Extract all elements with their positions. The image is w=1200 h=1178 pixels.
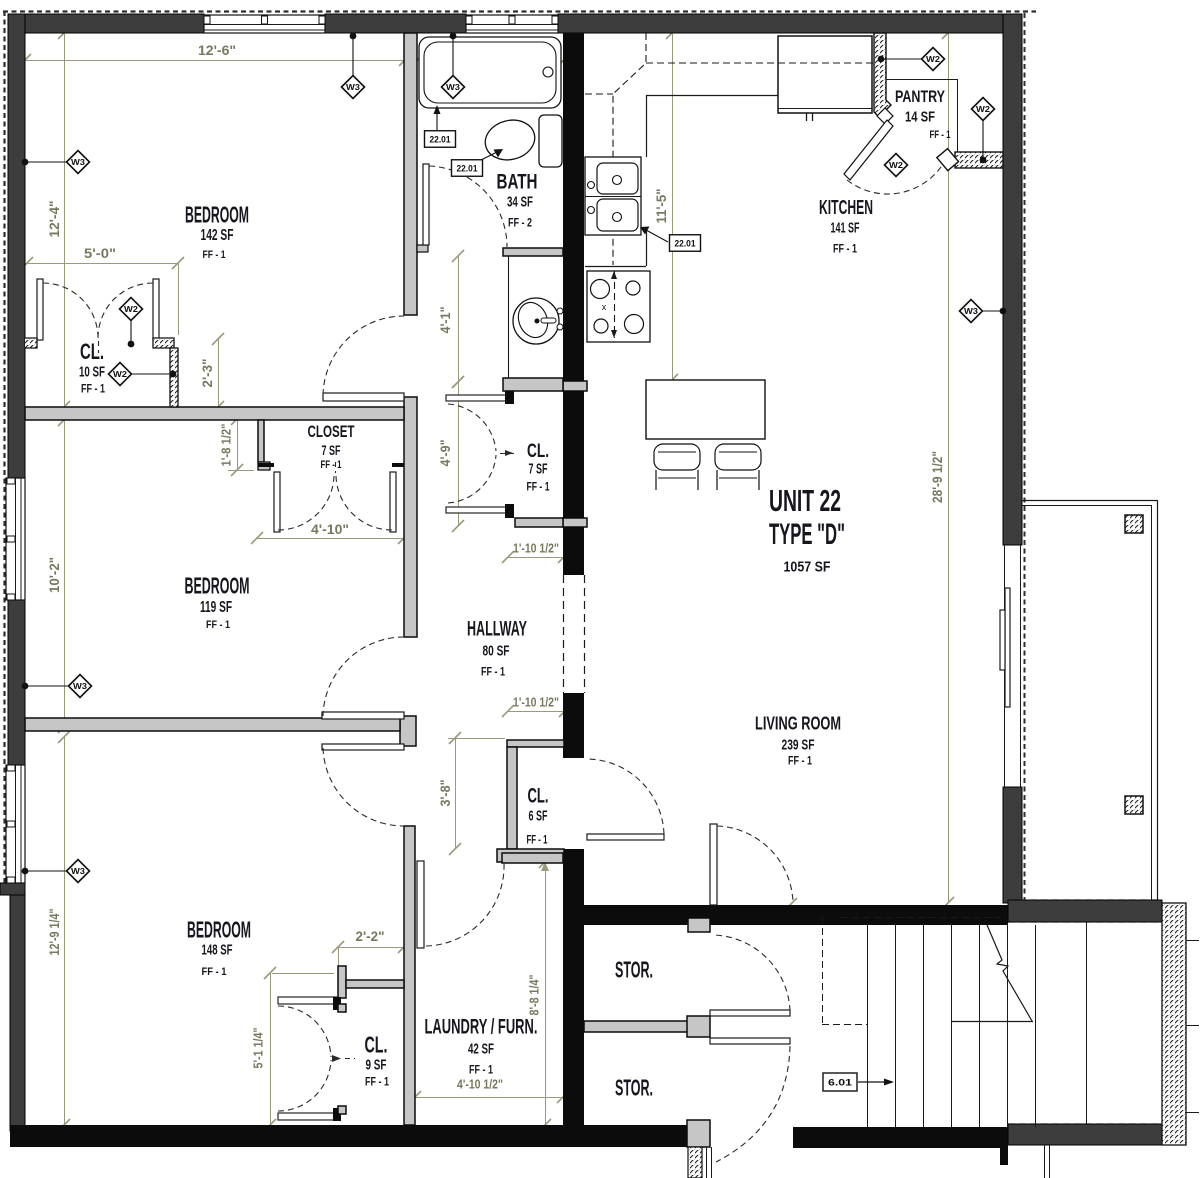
svg-text:FF - 1: FF - 1 [930, 129, 951, 141]
svg-text:W3: W3 [71, 866, 85, 876]
svg-text:7 SF: 7 SF [529, 460, 548, 477]
svg-text:W3: W3 [446, 82, 460, 92]
svg-text:W3: W3 [73, 681, 87, 691]
svg-text:UNIT 22: UNIT 22 [769, 483, 841, 518]
svg-text:W2: W2 [889, 160, 903, 170]
svg-text:STOR.: STOR. [615, 1074, 653, 1100]
svg-text:FF - 1: FF - 1 [788, 753, 812, 767]
svg-text:34 SF: 34 SF [507, 193, 533, 210]
svg-text:FF - 2: FF - 2 [508, 215, 532, 229]
svg-text:28'-9 1/2": 28'-9 1/2" [929, 451, 945, 503]
svg-text:W3: W3 [346, 82, 360, 92]
svg-text:FF - 1: FF - 1 [81, 381, 105, 395]
svg-text:W2: W2 [976, 104, 990, 114]
svg-text:1057 SF: 1057 SF [784, 558, 831, 575]
svg-text:1'-10 1/2": 1'-10 1/2" [513, 541, 559, 556]
svg-text:10'-2": 10'-2" [46, 557, 62, 593]
svg-text:FF - 1: FF - 1 [206, 619, 230, 631]
svg-text:CL.: CL. [365, 1031, 388, 1057]
svg-text:FF - 1: FF - 1 [527, 832, 548, 846]
svg-text:148 SF: 148 SF [202, 941, 233, 958]
svg-text:TYPE "D": TYPE "D" [769, 518, 845, 551]
svg-text:STOR.: STOR. [615, 956, 653, 982]
svg-text:BEDROOM: BEDROOM [187, 916, 251, 942]
svg-text:KITCHEN: KITCHEN [819, 197, 873, 219]
svg-text:FF - 1: FF - 1 [203, 249, 226, 261]
svg-text:1'-8 1/2": 1'-8 1/2" [219, 424, 234, 467]
svg-text:BEDROOM: BEDROOM [185, 201, 249, 227]
svg-text:PANTRY: PANTRY [895, 87, 945, 106]
svg-text:1'-10 1/2": 1'-10 1/2" [513, 695, 559, 710]
svg-text:W2: W2 [926, 54, 940, 64]
svg-text:FF - 1: FF - 1 [202, 966, 227, 978]
svg-text:5'-1 1/4": 5'-1 1/4" [251, 1028, 266, 1069]
svg-text:2'-3": 2'-3" [199, 359, 215, 388]
svg-text:3'-8": 3'-8" [437, 780, 453, 807]
svg-text:2'-2": 2'-2" [356, 928, 385, 944]
svg-text:239 SF: 239 SF [782, 736, 815, 753]
svg-text:FF - 1: FF - 1 [321, 459, 342, 471]
svg-text:7 SF: 7 SF [322, 442, 341, 458]
svg-text:8'-8 1/4": 8'-8 1/4" [527, 975, 542, 1016]
svg-text:LIVING ROOM: LIVING ROOM [755, 714, 841, 734]
svg-text:22.01: 22.01 [675, 238, 697, 249]
svg-text:12'-6": 12'-6" [198, 42, 236, 58]
svg-text:LAUNDRY / FURN.: LAUNDRY / FURN. [425, 1016, 538, 1039]
svg-text:4'-10 1/2": 4'-10 1/2" [457, 1077, 503, 1092]
svg-text:x: x [602, 302, 607, 312]
svg-text:12'-4": 12'-4" [46, 201, 62, 238]
svg-text:FF - 1: FF - 1 [527, 479, 550, 493]
svg-text:BEDROOM: BEDROOM [185, 572, 250, 598]
svg-text:141 SF: 141 SF [831, 219, 860, 236]
svg-text:22.01: 22.01 [430, 134, 452, 145]
svg-text:42 SF: 42 SF [468, 1040, 494, 1057]
svg-text:CL.: CL. [527, 441, 549, 462]
svg-text:6.01: 6.01 [828, 1077, 853, 1088]
svg-text:CL.: CL. [528, 785, 549, 808]
svg-text:W2: W2 [124, 304, 138, 314]
svg-text:80 SF: 80 SF [483, 642, 510, 659]
svg-text:FF - 1: FF - 1 [469, 1062, 493, 1076]
svg-text:CLOSET: CLOSET [308, 422, 355, 441]
svg-text:12'-9 1/4": 12'-9 1/4" [46, 909, 62, 956]
svg-text:6 SF: 6 SF [529, 807, 548, 824]
svg-text:5'-0": 5'-0" [84, 245, 116, 261]
svg-text:10 SF: 10 SF [79, 363, 105, 380]
svg-text:W3: W3 [964, 306, 978, 316]
svg-text:HALLWAY: HALLWAY [467, 618, 527, 641]
svg-text:CL.: CL. [80, 339, 104, 364]
svg-text:4'-9": 4'-9" [437, 440, 453, 467]
svg-text:BATH: BATH [497, 171, 538, 194]
svg-text:14 SF: 14 SF [905, 108, 935, 125]
svg-text:142 SF: 142 SF [201, 227, 234, 244]
svg-text:22.01: 22.01 [457, 163, 479, 174]
svg-text:11'-5": 11'-5" [653, 189, 669, 224]
svg-text:W2: W2 [113, 369, 127, 379]
svg-text:W3: W3 [71, 157, 85, 167]
svg-text:9 SF: 9 SF [366, 1056, 387, 1073]
svg-text:4'-1": 4'-1" [437, 307, 453, 334]
svg-text:FF - 1: FF - 1 [833, 241, 857, 255]
svg-text:4'-10": 4'-10" [311, 521, 349, 537]
svg-text:119 SF: 119 SF [200, 599, 232, 616]
svg-text:FF - 1: FF - 1 [365, 1074, 389, 1088]
svg-text:FF - 1: FF - 1 [481, 664, 505, 678]
